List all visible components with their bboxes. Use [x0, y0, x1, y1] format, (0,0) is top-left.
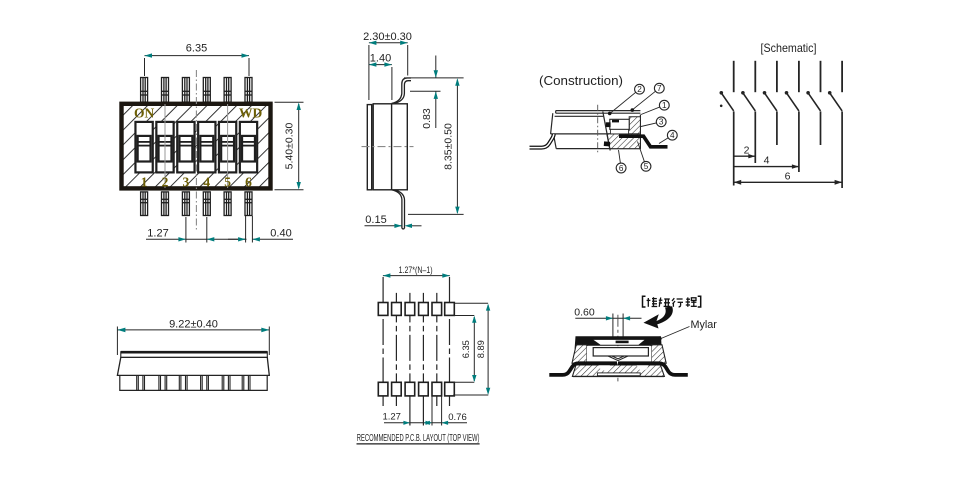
svg-text:5: 5: [644, 162, 649, 171]
svg-text:6: 6: [619, 164, 624, 173]
svg-text:5: 5: [224, 175, 231, 190]
svg-text:5.40±0.30: 5.40±0.30: [284, 123, 296, 170]
svg-text:1: 1: [141, 175, 148, 190]
svg-text:6.35: 6.35: [461, 340, 471, 358]
svg-text:3: 3: [659, 118, 664, 127]
svg-text:4: 4: [203, 175, 210, 190]
svg-text:0.76: 0.76: [448, 412, 467, 423]
svg-text:2: 2: [637, 85, 642, 94]
svg-text:RECOMMENDED P.C.B. LAYOUT (TOP: RECOMMENDED P.C.B. LAYOUT (TOP VIEW): [357, 433, 480, 444]
svg-text:1.40: 1.40: [370, 52, 391, 64]
svg-text:3: 3: [183, 175, 190, 190]
svg-text:[Schematic]: [Schematic]: [761, 41, 817, 55]
svg-text:ON: ON: [134, 106, 155, 121]
svg-text:9.22±0.40: 9.22±0.40: [169, 319, 218, 331]
svg-text:WD: WD: [239, 106, 263, 121]
svg-text:0.60: 0.60: [574, 307, 595, 319]
svg-text:4: 4: [670, 131, 675, 140]
svg-text:Mylar: Mylar: [691, 319, 718, 331]
svg-text:(Construction): (Construction): [539, 73, 623, 88]
svg-text:8.89: 8.89: [476, 340, 486, 358]
svg-text:0.83: 0.83: [421, 108, 433, 129]
svg-text:8.35±0.50: 8.35±0.50: [443, 123, 455, 170]
svg-text:1.27*(N–1): 1.27*(N–1): [399, 265, 433, 276]
svg-text:6: 6: [245, 175, 252, 190]
svg-text:6.35: 6.35: [186, 43, 207, 55]
svg-text:6: 6: [785, 170, 791, 182]
svg-text:4: 4: [764, 155, 770, 167]
svg-text:2.30±0.30: 2.30±0.30: [363, 31, 412, 43]
svg-text:7: 7: [657, 84, 662, 93]
svg-text:1.27: 1.27: [382, 412, 401, 423]
svg-text:1.27: 1.27: [147, 227, 168, 239]
svg-text:1: 1: [662, 101, 667, 110]
svg-text:0.15: 0.15: [365, 214, 386, 226]
svg-text:2: 2: [162, 175, 169, 190]
svg-text:0.40: 0.40: [270, 227, 291, 239]
